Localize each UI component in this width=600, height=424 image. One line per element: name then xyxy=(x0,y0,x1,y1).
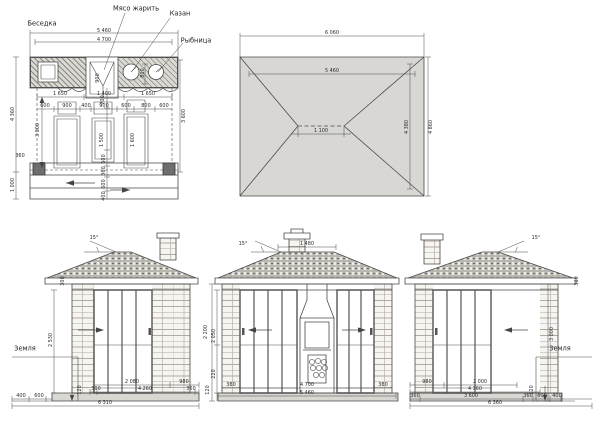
drawing-sheet: Беседка Мясо жарить Казан Рыбница 5 460 … xyxy=(0,0,600,424)
drawing-linework xyxy=(0,0,600,424)
elevation-left xyxy=(12,233,199,409)
elevation-right xyxy=(405,234,592,409)
roof-plan-view xyxy=(240,33,431,196)
floor-plan-view xyxy=(13,13,183,199)
elevation-front xyxy=(209,229,399,401)
